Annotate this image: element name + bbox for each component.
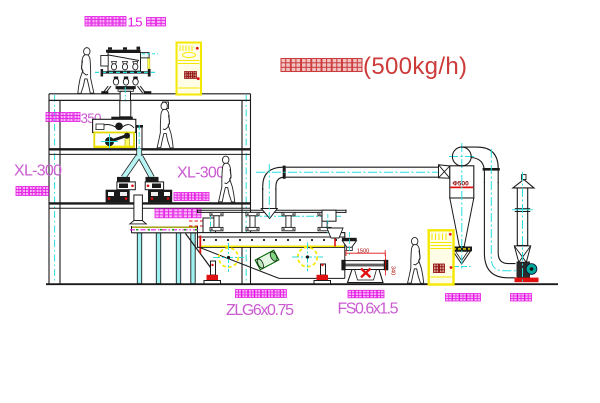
svg-text:Φ500: Φ500	[453, 181, 470, 188]
svg-text:ZLG6x0.75: ZLG6x0.75	[226, 302, 294, 319]
svg-text:1500: 1500	[357, 248, 369, 254]
svg-text:XL-300: XL-300	[177, 165, 225, 182]
svg-text:FS0.6x1.5: FS0.6x1.5	[338, 301, 399, 318]
svg-text:(500kg/h): (500kg/h)	[363, 53, 467, 80]
svg-text:1.5: 1.5	[128, 15, 143, 30]
svg-text:XL-300: XL-300	[14, 163, 62, 180]
svg-text:340: 340	[390, 266, 396, 275]
